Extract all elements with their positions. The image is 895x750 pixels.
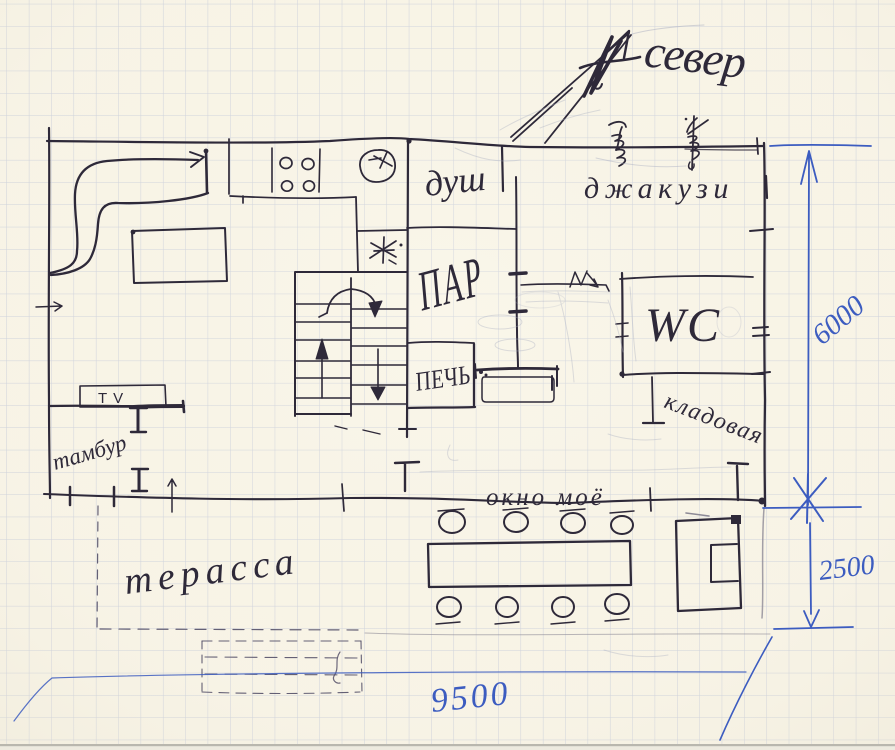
svg-text:окно моё: окно моё <box>486 484 605 511</box>
svg-text:WC: WC <box>645 299 721 352</box>
svg-text:душ: душ <box>423 158 488 204</box>
svg-text:TV: TV <box>98 390 129 407</box>
svg-text:джакузи: джакузи <box>584 172 734 205</box>
